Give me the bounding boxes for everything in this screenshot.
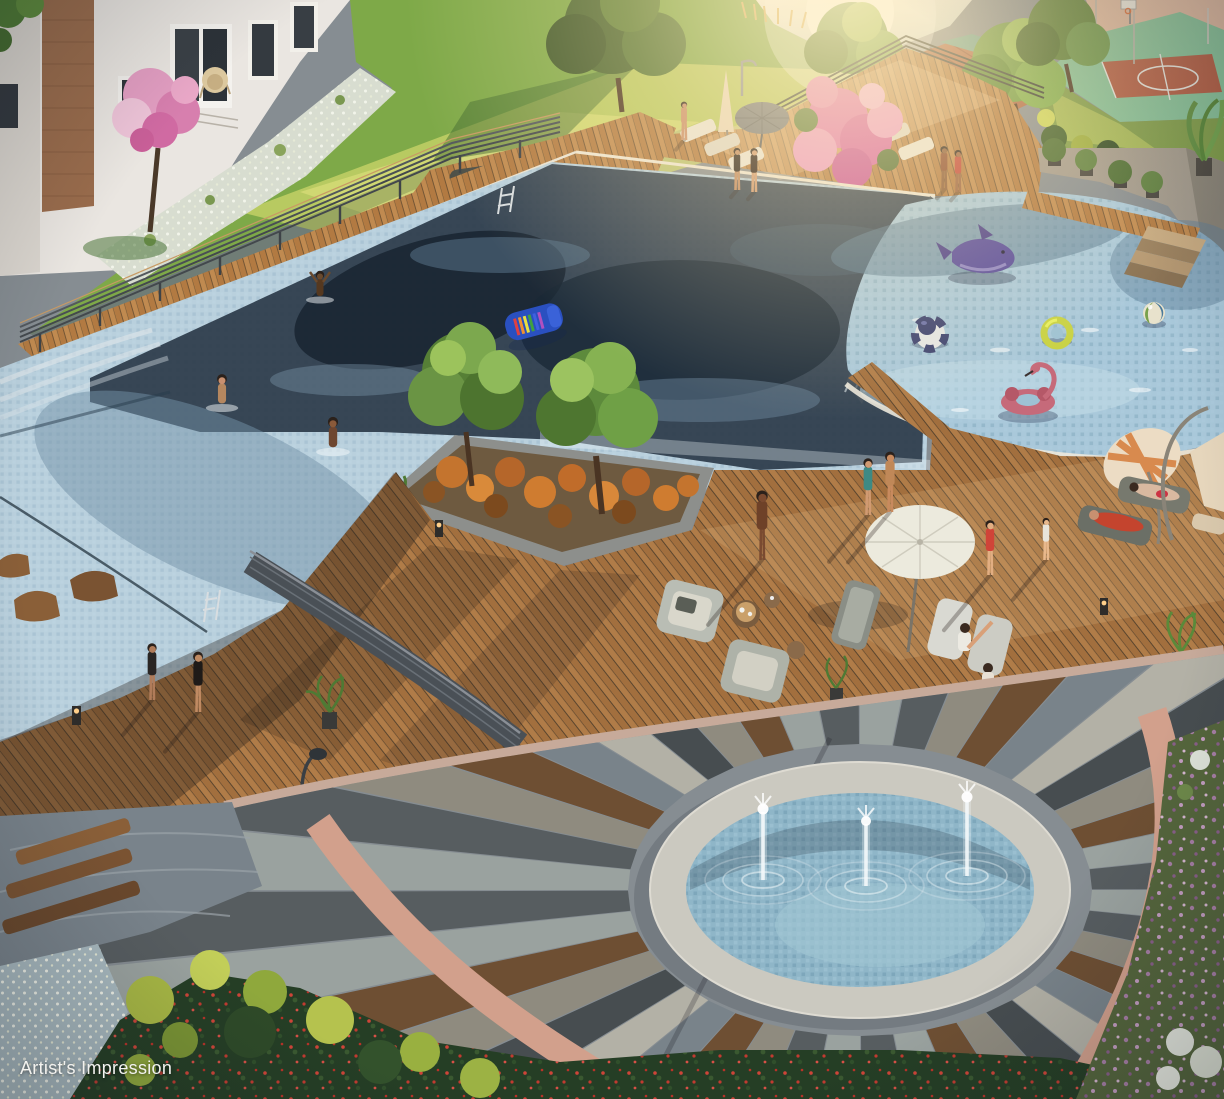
rendering-canvas: Artist's Impression xyxy=(0,0,1224,1099)
scene-svg xyxy=(0,0,1224,1099)
caption-artists-impression: Artist's Impression xyxy=(20,1058,172,1079)
vignette xyxy=(0,0,1224,1099)
